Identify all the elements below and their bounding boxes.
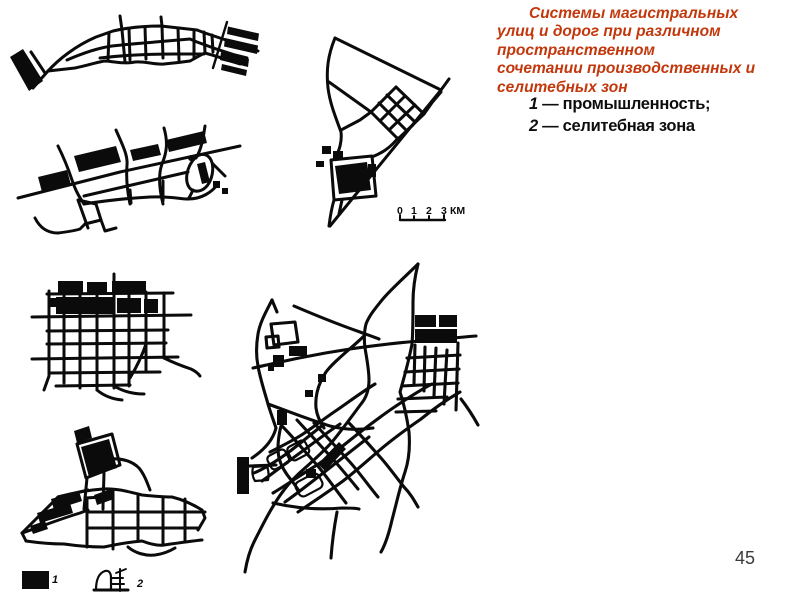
svg-text:2: 2 [426,205,432,217]
svg-text:3: 3 [441,205,447,217]
svg-text:0: 0 [397,205,403,217]
svg-text:2: 2 [136,578,143,590]
svg-text:1: 1 [52,574,58,586]
svg-text:1: 1 [411,205,417,217]
svg-text:КМ: КМ [450,205,465,217]
